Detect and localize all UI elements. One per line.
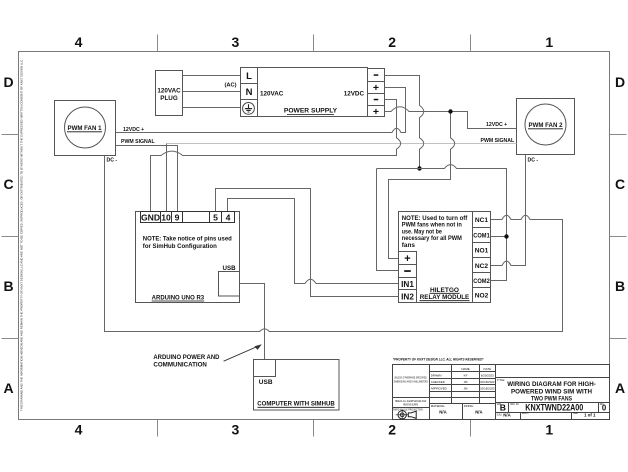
- svg-text:UNLESS OTHERWISE SPECIFIED,: UNLESS OTHERWISE SPECIFIED,: [394, 376, 427, 380]
- svg-text:KNXTWND22A00: KNXTWND22A00: [525, 403, 583, 413]
- svg-text:1: 1: [545, 422, 553, 438]
- svg-text:PWM FAN 2: PWM FAN 2: [529, 122, 563, 129]
- svg-text:D: D: [3, 74, 13, 90]
- svg-text:2: 2: [388, 34, 396, 50]
- svg-text:PWM SIGNAL: PWM SIGNAL: [121, 139, 156, 145]
- svg-text:12VDC: 12VDC: [344, 90, 365, 97]
- svg-text:NC2: NC2: [475, 263, 489, 270]
- svg-text:4: 4: [75, 422, 83, 438]
- svg-text:10/16/2023: 10/16/2023: [480, 380, 495, 384]
- svg-text:(AC): (AC): [224, 83, 236, 89]
- svg-text:L: L: [246, 71, 252, 82]
- svg-text:10: 10: [161, 212, 171, 222]
- svg-text:PWM FAN 1: PWM FAN 1: [68, 125, 102, 132]
- svg-text:COM2: COM2: [473, 278, 490, 285]
- svg-text:SHEET: SHEET: [573, 412, 579, 415]
- svg-text:D: D: [615, 74, 625, 90]
- svg-text:for SimHub Configuration: for SimHub Configuration: [143, 243, 217, 250]
- svg-text:SCALE:: SCALE:: [497, 413, 503, 416]
- svg-text:PWM SIGNAL: PWM SIGNAL: [481, 138, 516, 144]
- svg-text:NC1: NC1: [475, 217, 489, 224]
- svg-text:FINISH: FINISH: [464, 404, 473, 408]
- svg-text:APPROVED: APPROVED: [431, 386, 447, 390]
- svg-text:N/A: N/A: [439, 410, 446, 415]
- svg-text:N/A: N/A: [503, 413, 510, 418]
- svg-text:N/A: N/A: [475, 410, 482, 415]
- svg-text:B: B: [500, 403, 506, 413]
- svg-text:DIMENSIONS ARE IN MILLIMETERS: DIMENSIONS ARE IN MILLIMETERS: [394, 379, 428, 383]
- svg-text:N: N: [246, 87, 253, 98]
- svg-text:*PROPERTY OF KNXT DESIGN LLC.: *PROPERTY OF KNXT DESIGN LLC. ALL RIGHTS…: [393, 357, 484, 361]
- svg-text:HILETGO: HILETGO: [430, 287, 459, 294]
- svg-text:4: 4: [226, 212, 231, 222]
- svg-text:USB: USB: [223, 265, 237, 272]
- svg-text:+: +: [373, 82, 379, 94]
- svg-text:1 of 1: 1 of 1: [584, 412, 596, 417]
- svg-text:IN1: IN1: [401, 280, 414, 289]
- svg-text:CHECKED: CHECKED: [431, 380, 445, 384]
- svg-text:POWERED WIND SIM WITH: POWERED WIND SIM WITH: [511, 388, 592, 395]
- svg-text:4: 4: [75, 34, 83, 50]
- svg-text:C: C: [615, 176, 625, 192]
- svg-text:NO1: NO1: [475, 248, 489, 255]
- svg-text:REMOVE BURRS: REMOVE BURRS: [403, 402, 418, 406]
- svg-text:WIRING DIAGRAM FOR HIGH-: WIRING DIAGRAM FOR HIGH-: [507, 381, 596, 388]
- svg-text:C: C: [3, 176, 13, 192]
- svg-text:COMMUNICATION: COMMUNICATION: [153, 362, 207, 369]
- svg-text:DWG. NO.: DWG. NO.: [510, 403, 519, 406]
- svg-text:+: +: [404, 253, 410, 265]
- svg-text:MATERIAL: MATERIAL: [431, 404, 446, 408]
- svg-text:1: 1: [545, 34, 553, 50]
- svg-text:COM1: COM1: [473, 232, 490, 239]
- svg-text:10/16/2023: 10/16/2023: [480, 386, 495, 390]
- svg-text:3: 3: [232, 422, 240, 438]
- svg-text:120VAC: 120VAC: [157, 88, 181, 95]
- svg-text:A: A: [3, 380, 13, 396]
- svg-text:DRAWN: DRAWN: [431, 373, 442, 377]
- svg-text:KF: KF: [464, 373, 468, 377]
- svg-text:USB: USB: [259, 379, 273, 386]
- svg-text:ARDUINO UNO R3: ARDUINO UNO R3: [152, 295, 205, 302]
- svg-text:TWO PWM FANS: TWO PWM FANS: [531, 396, 572, 403]
- svg-text:B: B: [3, 278, 13, 294]
- svg-text:GND: GND: [141, 212, 160, 222]
- svg-text:BREAK ALL SHARP EDGES AND: BREAK ALL SHARP EDGES AND: [395, 399, 426, 403]
- svg-text:+: +: [373, 106, 379, 118]
- svg-text:3: 3: [232, 34, 240, 50]
- svg-text:9: 9: [175, 212, 180, 222]
- svg-text:ARDUINO POWER AND: ARDUINO POWER AND: [153, 354, 219, 361]
- svg-text:THIRD ANGLE PROJECTION: THIRD ANGLE PROJECTION: [393, 409, 423, 412]
- svg-text:0: 0: [602, 403, 607, 412]
- svg-text:POWER SUPPLY: POWER SUPPLY: [284, 108, 338, 115]
- svg-text:12VDC +: 12VDC +: [123, 127, 144, 133]
- svg-text:JM: JM: [464, 386, 468, 390]
- svg-text:IN2: IN2: [401, 292, 414, 301]
- svg-text:TITLE:: TITLE:: [497, 378, 505, 382]
- svg-text:JM: JM: [464, 380, 468, 384]
- svg-text:6/20/2023: 6/20/2023: [481, 373, 494, 377]
- svg-text:DATE: DATE: [484, 367, 492, 371]
- svg-text:5: 5: [213, 212, 218, 222]
- svg-text:NAME: NAME: [461, 367, 469, 371]
- svg-text:WEIGHT:: WEIGHT:: [522, 412, 529, 415]
- svg-text:NO2: NO2: [475, 293, 489, 300]
- svg-text:PLUG: PLUG: [160, 95, 178, 102]
- svg-text:THIS DRAWING AND THE INFORMATI: THIS DRAWING AND THE INFORMATION HEREON …: [20, 59, 24, 411]
- svg-text:fans: fans: [402, 242, 416, 249]
- svg-text:120VAC: 120VAC: [260, 90, 284, 97]
- svg-text:DC -: DC -: [528, 158, 539, 164]
- svg-text:COMPUTER WITH SIMHUB: COMPUTER WITH SIMHUB: [257, 401, 335, 408]
- svg-text:B: B: [615, 278, 625, 294]
- svg-text:RELAY MODULE: RELAY MODULE: [420, 294, 470, 301]
- svg-text:2: 2: [388, 422, 396, 438]
- svg-text:A: A: [615, 380, 625, 396]
- svg-text:12VDC +: 12VDC +: [486, 122, 507, 128]
- svg-text:DC -: DC -: [107, 158, 118, 164]
- svg-text:NOTE: Take notice of pins used: NOTE: Take notice of pins used: [143, 235, 232, 242]
